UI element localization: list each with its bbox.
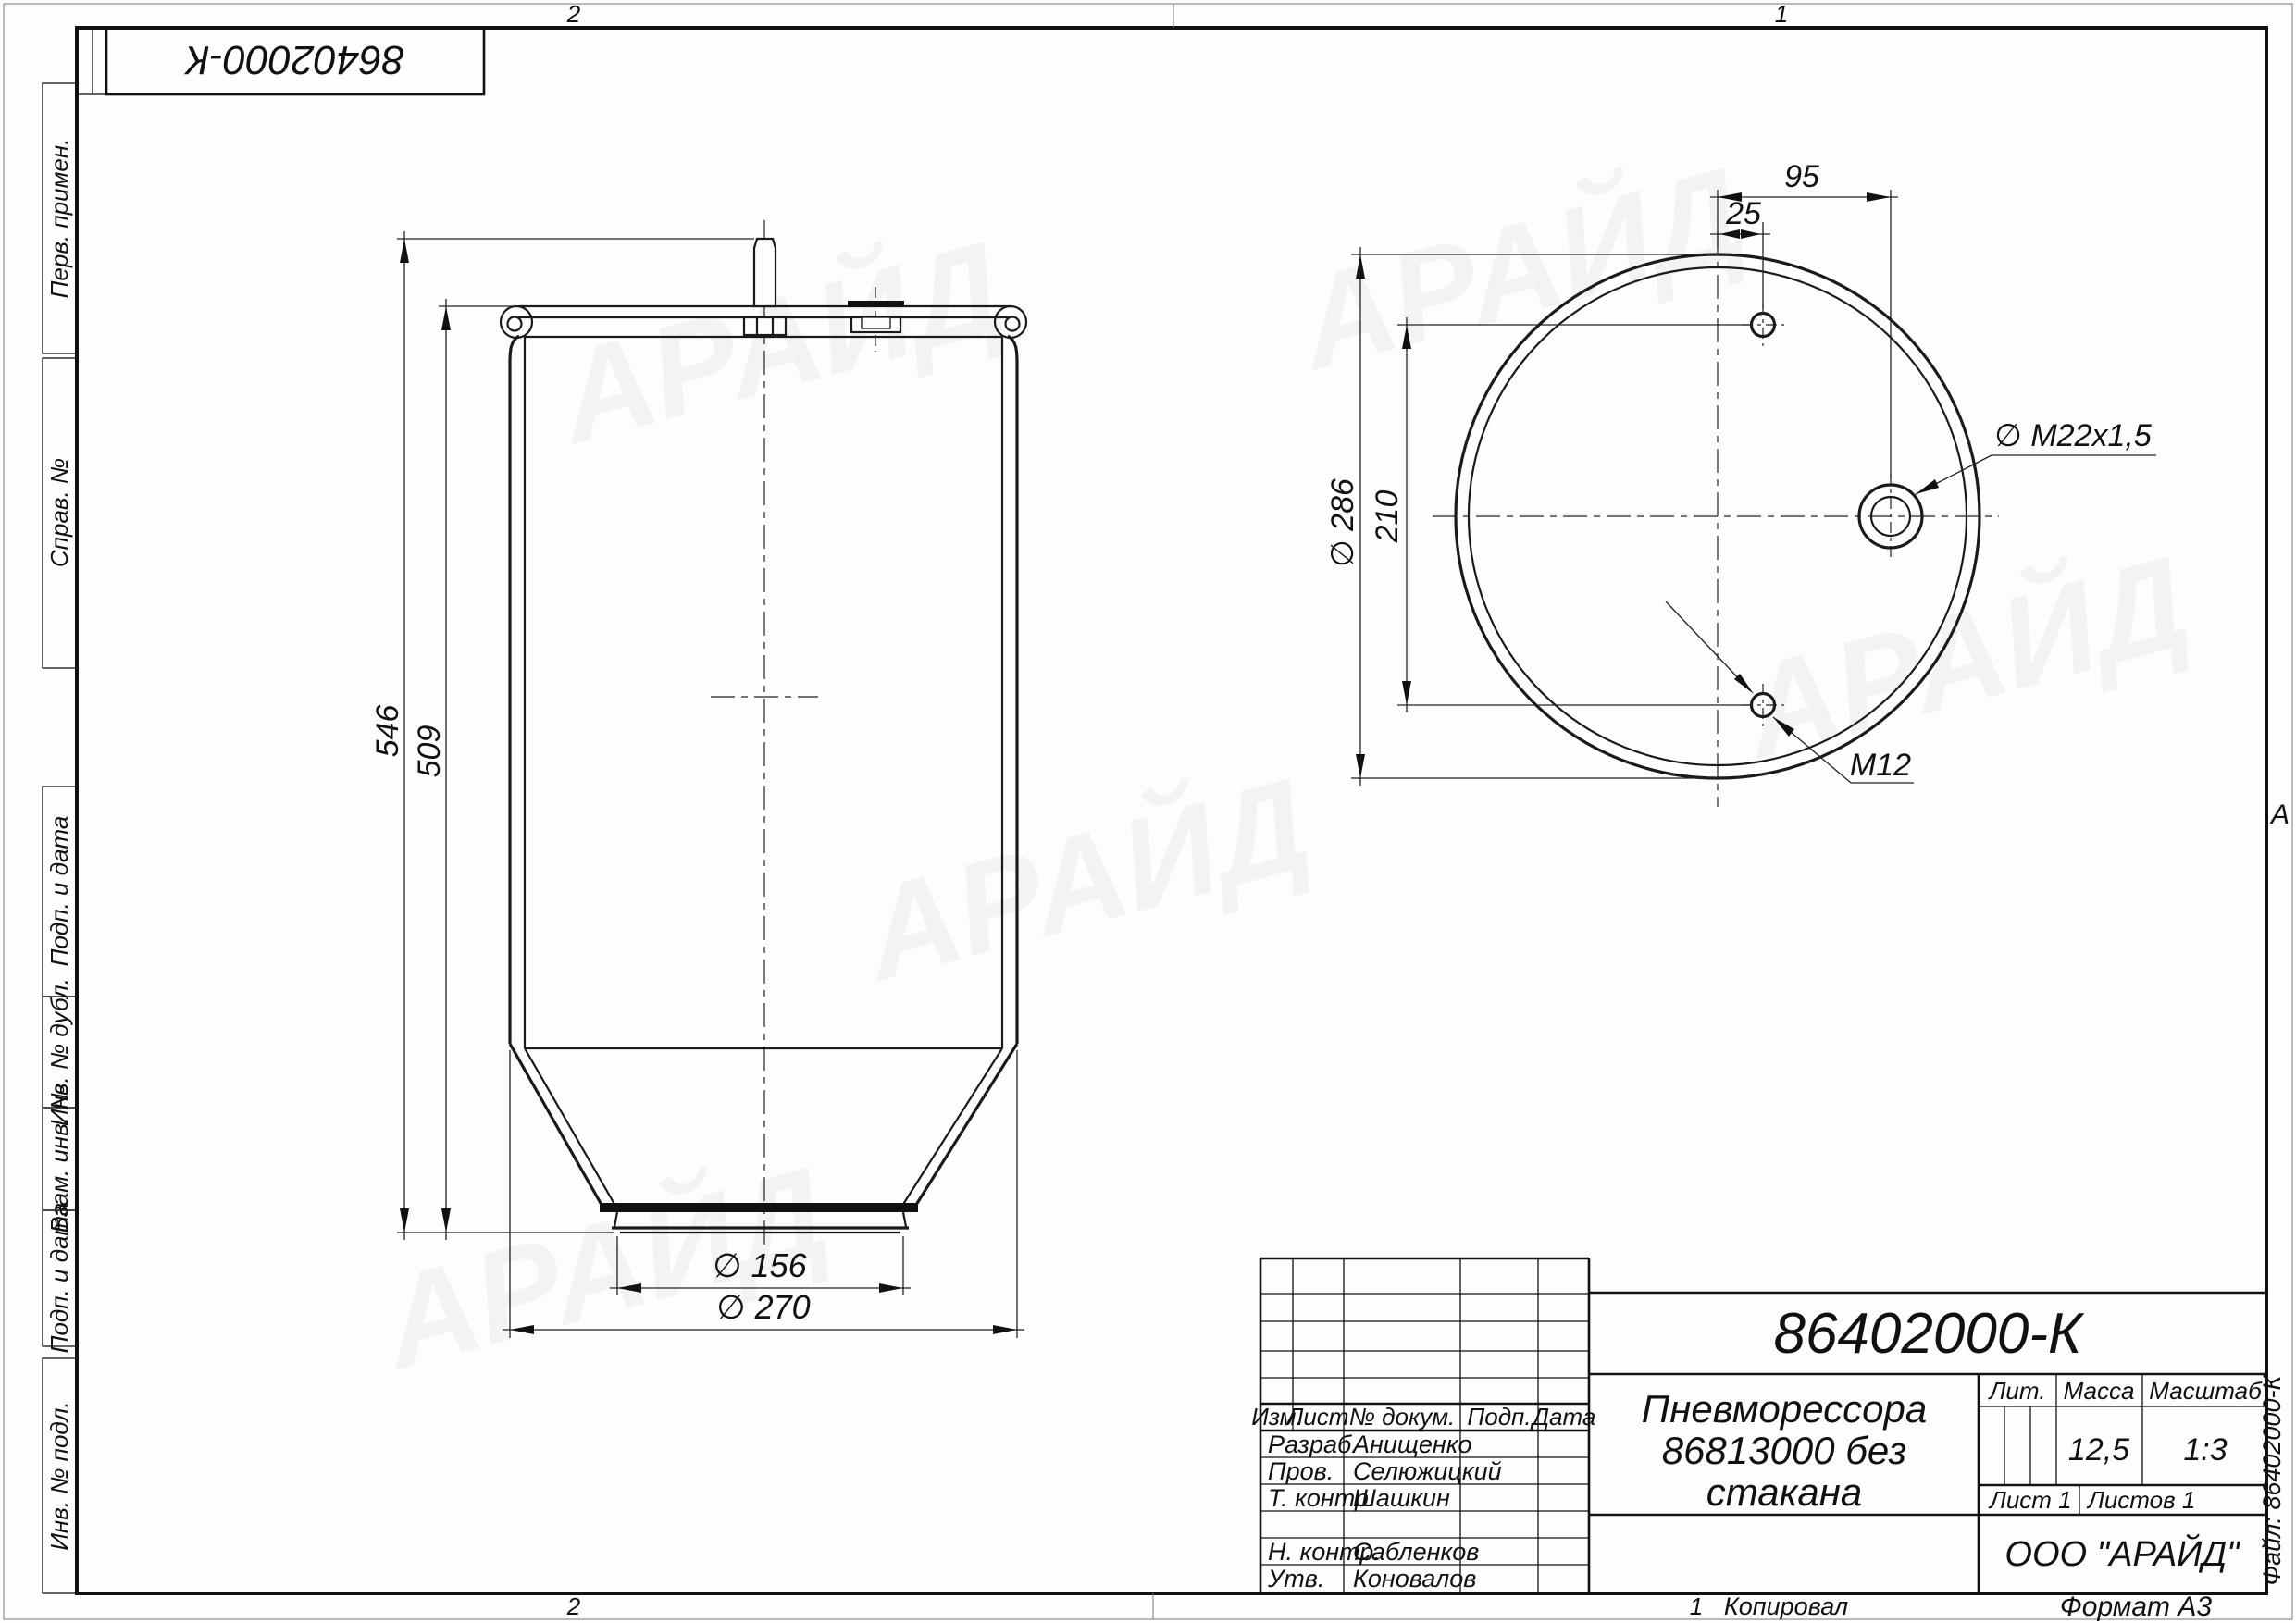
tb-name: Сабленков — [1353, 1538, 1479, 1566]
stamp-doc-number: 86402000-К — [184, 37, 404, 82]
title-block: Изм. Лист № докум. Подп. Дата Разраб. Ан… — [1251, 1258, 2266, 1593]
label-m12: M12 — [1850, 748, 1911, 783]
dim-dia-270: ∅ 270 — [716, 1288, 810, 1326]
tb-title-line2: 86813000 без — [1662, 1429, 1907, 1472]
zone-number-top-1: 1 — [1775, 0, 1788, 28]
dim-dia-286: ∅ 286 — [1325, 478, 1360, 567]
copied-label: Копировал — [1724, 1592, 1848, 1620]
tb-sheets: Листов 1 — [2086, 1486, 2195, 1514]
watermark-text: АРАЙД — [1725, 528, 2202, 787]
zone-number-top-2: 2 — [566, 0, 581, 28]
sidebar-label: Перв. примен. — [45, 139, 73, 299]
zone-letter: А — [2269, 799, 2290, 830]
tb-col-ndoc: № докум. — [1349, 1403, 1456, 1431]
tb-title-line3: стакана — [1706, 1470, 1863, 1514]
tb-col-podp: Подп. — [1467, 1403, 1531, 1431]
tb-role: Пров. — [1268, 1457, 1334, 1485]
left-sidebar: Перв. примен. Справ. № Подп. и дата Инв.… — [43, 83, 76, 1593]
tb-doc-number: 86402000-К — [1773, 1302, 2084, 1366]
drawing-sheet: АРАЙД АРАЙД АРАЙД АРАЙД АРАЙД 2 1 2 1 Ко… — [0, 0, 2296, 1623]
dim-546: 546 — [370, 705, 405, 758]
tb-sheet: Лист 1 — [1988, 1486, 2072, 1514]
tb-scale-value: 1:3 — [2183, 1432, 2227, 1468]
sidebar-label: Инв. № подл. — [45, 1401, 73, 1550]
zone-number-bottom-2: 2 — [566, 1592, 581, 1620]
tb-title-line1: Пневморессора — [1642, 1387, 1927, 1431]
watermark-text: АРАЙД — [540, 214, 1017, 472]
tb-name: Анищенко — [1351, 1431, 1472, 1458]
tb-name: Шашкин — [1353, 1484, 1450, 1512]
dim-509: 509 — [412, 725, 447, 778]
tb-col-data: Дата — [1530, 1403, 1596, 1431]
tb-role: Утв. — [1267, 1565, 1324, 1592]
dim-dia-156: ∅ 156 — [713, 1246, 807, 1284]
tb-lit-label: Лит. — [1988, 1377, 2046, 1405]
format-label: Формат А3 — [2060, 1592, 2212, 1622]
engineering-drawing: АРАЙД АРАЙД АРАЙД АРАЙД АРАЙД 2 1 2 1 Ко… — [0, 0, 2296, 1623]
watermark-text: АРАЙД — [846, 750, 1322, 1009]
dim-25: 25 — [1725, 196, 1761, 231]
dim-210: 210 — [1370, 490, 1405, 544]
tb-mass-label: Масса — [2064, 1377, 2135, 1405]
dim-95: 95 — [1784, 159, 1819, 194]
tb-name: Селюжицкий — [1353, 1457, 1502, 1485]
tb-name: Коновалов — [1353, 1565, 1476, 1592]
tb-scale-label: Масштаб — [2149, 1377, 2263, 1405]
zone-number-bottom-1: 1 — [1690, 1592, 1703, 1620]
tb-role: Разраб. — [1268, 1431, 1359, 1458]
tb-col-list: Лист — [1285, 1403, 1349, 1431]
tb-mass-value: 12,5 — [2068, 1432, 2129, 1468]
tb-company: ООО "АРАЙД" — [2004, 1533, 2240, 1574]
top-left-stamp: 86402000-К — [78, 28, 484, 94]
sidebar-label: Подп. и дата — [45, 816, 73, 967]
sidebar-label: Справ. № — [45, 458, 73, 567]
sidebar-label: Подп. и дата — [45, 1203, 73, 1354]
label-m22: ∅ M22x1,5 — [1994, 418, 2152, 453]
file-label: Файл: 86402000-К — [2258, 1374, 2286, 1586]
